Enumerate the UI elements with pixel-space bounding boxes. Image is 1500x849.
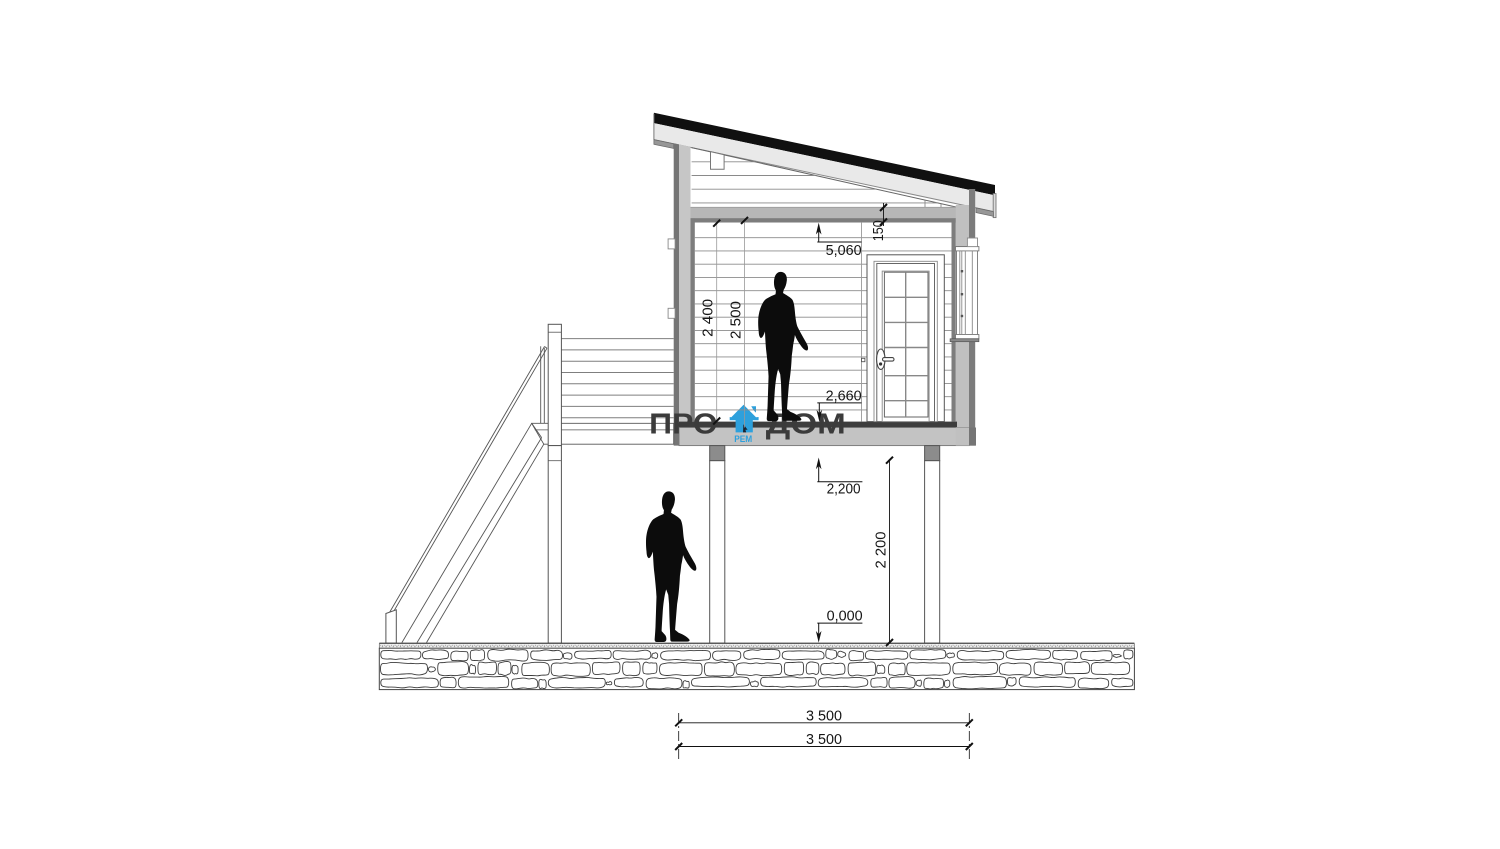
svg-text:2 500: 2 500 (727, 301, 744, 339)
svg-text:2 400: 2 400 (700, 299, 717, 337)
svg-text:150: 150 (870, 220, 887, 241)
svg-text:2,660: 2,660 (826, 388, 862, 405)
svg-text:0,000: 0,000 (827, 607, 863, 624)
svg-text:РЕМ: РЕМ (734, 434, 752, 444)
svg-text:2 200: 2 200 (872, 532, 889, 569)
svg-text:ПРО: ПРО (649, 408, 718, 440)
svg-text:2,200: 2,200 (827, 480, 861, 497)
svg-text:3 500: 3 500 (806, 731, 842, 748)
svg-text:ДОМ: ДОМ (766, 408, 846, 440)
svg-text:3 500: 3 500 (806, 707, 842, 724)
svg-text:5,060: 5,060 (826, 242, 862, 259)
